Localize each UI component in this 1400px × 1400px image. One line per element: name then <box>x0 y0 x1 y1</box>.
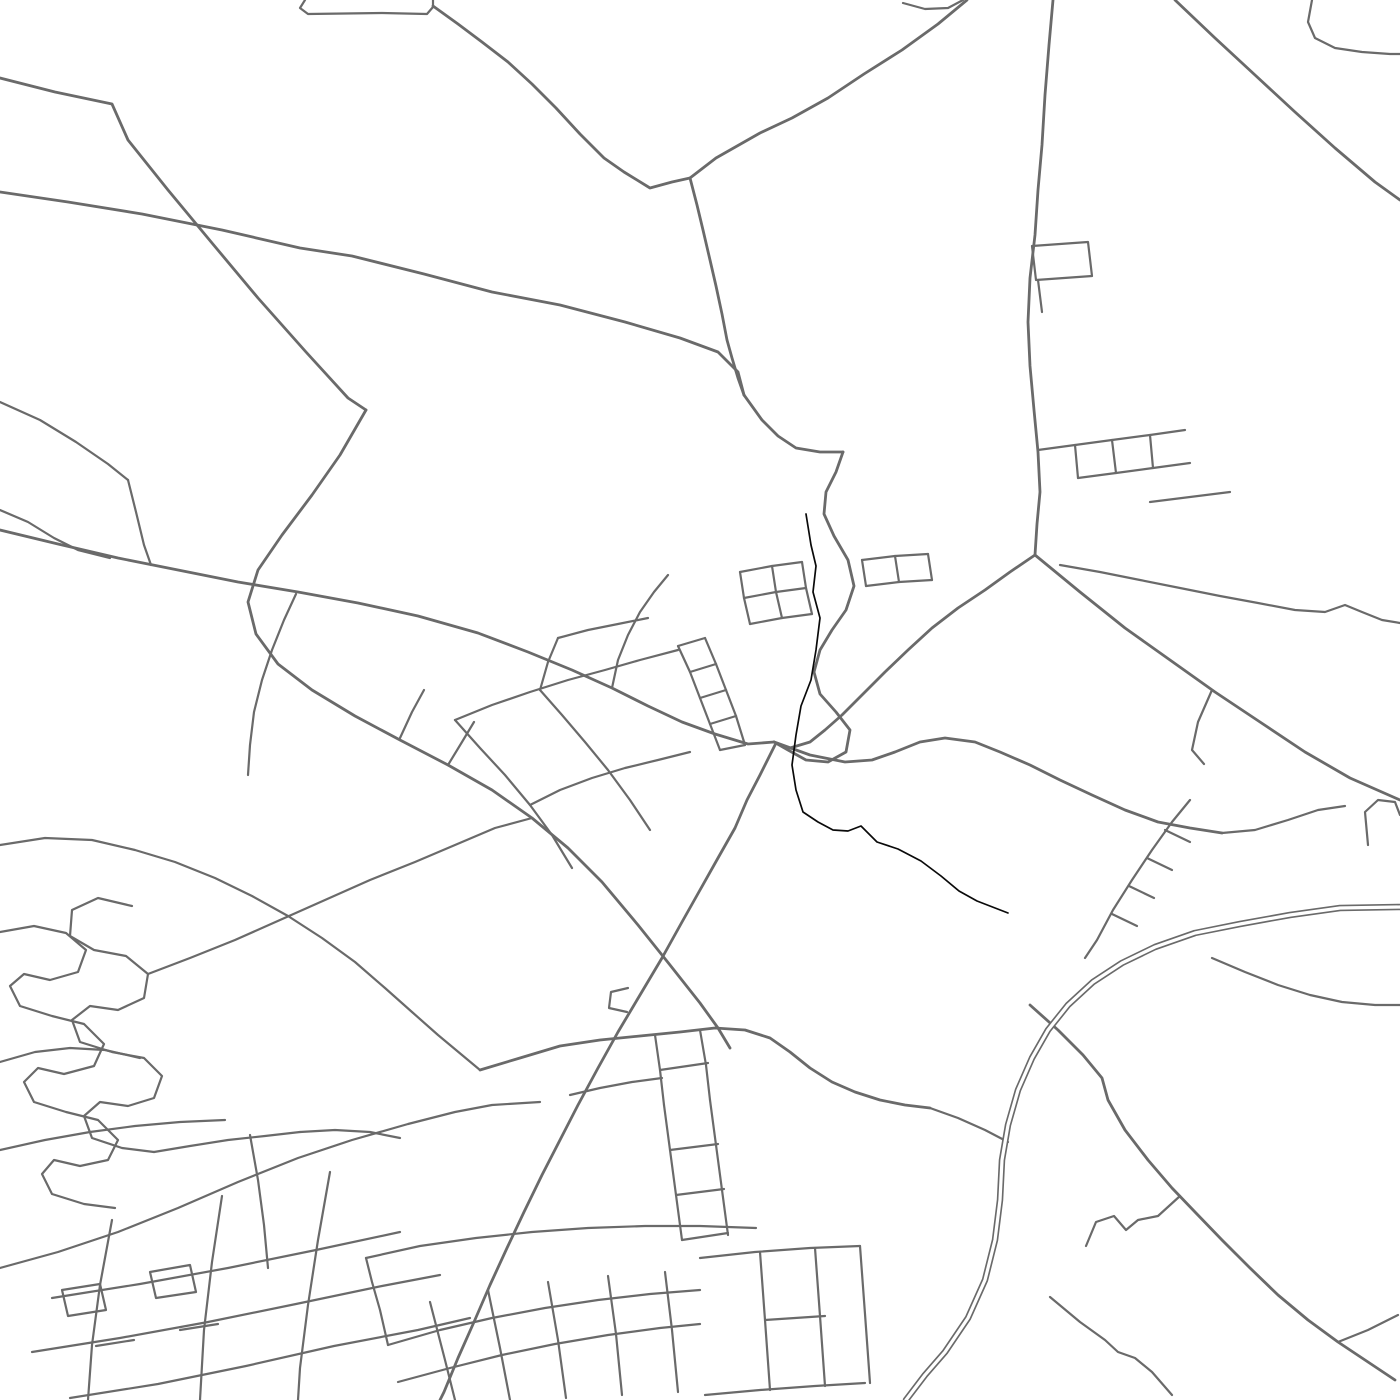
map-canvas[interactable] <box>0 0 1400 1400</box>
map-viewport[interactable] <box>0 0 1400 1400</box>
